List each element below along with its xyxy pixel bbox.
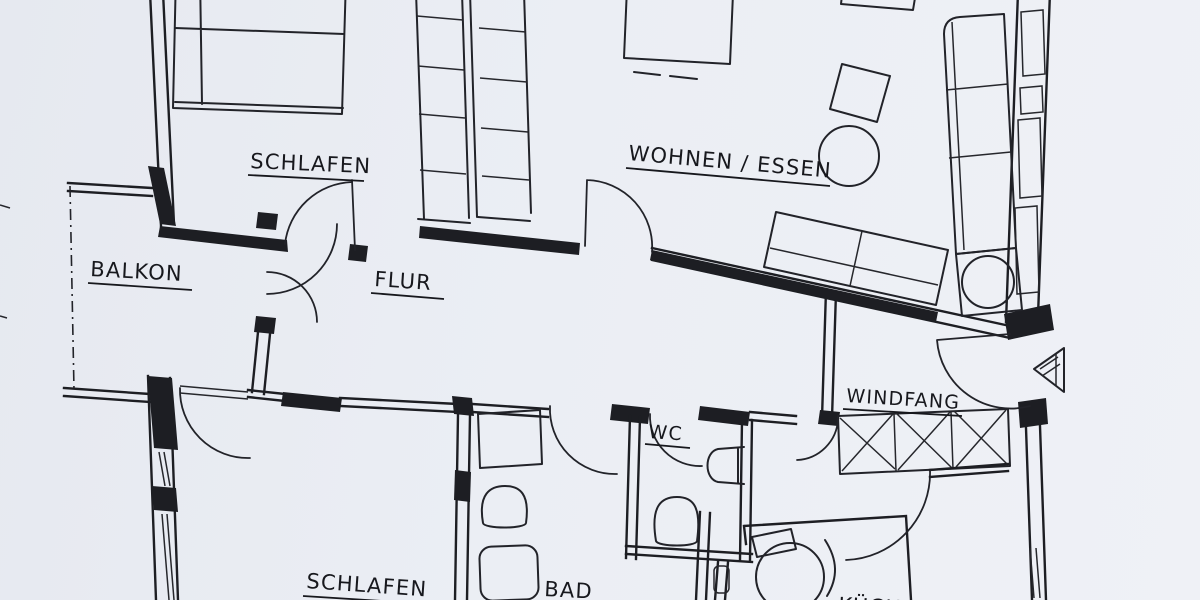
kueche-table (756, 543, 824, 600)
room-label-bad: BAD (544, 577, 594, 600)
sofa-right-cushions (946, 22, 1011, 250)
dining-table (624, 0, 734, 64)
toilet-wc (654, 497, 698, 546)
door-arc-windfang-kueche (846, 470, 930, 560)
door-arc-bad (550, 406, 617, 474)
wall-schlafen2-right (455, 414, 470, 600)
post-schlafen2-left-mid (152, 486, 178, 512)
wall-below-xbox (930, 464, 1008, 477)
wall-flur-bottom-b (340, 398, 458, 412)
bed (173, 0, 346, 114)
room-label-kueche: KÜCHE (838, 592, 918, 600)
left-edge-tick-1 (0, 205, 10, 208)
sill-schlafen2-door (180, 386, 248, 399)
wall-flur-bottom-a (248, 390, 285, 401)
balkon-open-edge (70, 186, 74, 390)
wardrobe-left-edge (416, 0, 424, 219)
window-schlafen2-glazing-1 (159, 452, 170, 486)
entrance-arrow-icon (1034, 348, 1064, 392)
window-schlafen2-glazing-2 (162, 514, 174, 600)
washbasin (708, 447, 745, 484)
wall-post-schlafen1-door (348, 244, 368, 262)
room-label-wc: WC (648, 421, 684, 445)
xbox-cross-2 (896, 412, 952, 470)
chair-diamond (830, 64, 890, 122)
sofa-right-segment (944, 14, 1016, 254)
wall-wc-left (626, 416, 640, 559)
wall-flur-bottom-fill (281, 392, 342, 412)
floor-plan-page: SCHLAFEN WOHNEN / ESSEN BALKON FLUR SCHL… (0, 0, 1200, 600)
room-label-schlafen-2: SCHLAFEN (306, 569, 428, 600)
wall-corridor-top (750, 412, 796, 424)
furniture-schlafen-1 (173, 0, 346, 114)
wall-kueche-partition (744, 516, 911, 600)
window-pane-3 (1018, 118, 1042, 198)
post-schlafen2-left-top (148, 376, 178, 450)
post-entrance-bottom (1018, 398, 1048, 428)
floor-plan-drawing: SCHLAFEN WOHNEN / ESSEN BALKON FLUR SCHL… (0, 0, 1200, 600)
sofa-corner (956, 248, 1022, 316)
entrance-arrow-outline (1034, 348, 1064, 392)
post-wc-top-right (698, 406, 750, 426)
wall-under-wardrobe (419, 226, 580, 255)
sofa-corner-cushion (962, 256, 1014, 308)
chair-dashes (634, 72, 697, 79)
door-arc-balkon-leaf1 (267, 224, 337, 294)
wall-flur-west (252, 332, 270, 394)
room-label-schlafen-1: SCHLAFEN (250, 149, 372, 178)
left-edge-tick-2 (0, 316, 7, 318)
bed-divider-lines (175, 0, 344, 108)
windfang-built-in-wardrobe (838, 409, 1010, 477)
window-pane-1 (1021, 10, 1045, 76)
wall-windfang-west (822, 290, 836, 418)
wardrobe-shelves-left (417, 16, 466, 174)
corner-right-wall (1004, 304, 1054, 340)
fixtures-bad (478, 410, 542, 600)
room-label-flur: FLUR (374, 267, 433, 295)
post-balkon-door-top (256, 212, 278, 230)
wardrobe-shelves-right (479, 28, 529, 180)
room-labels: SCHLAFEN WOHNEN / ESSEN BALKON FLUR SCHL… (88, 141, 962, 600)
wall-wc-bottom (626, 546, 752, 562)
doors (180, 180, 1030, 560)
window-pane-2 (1020, 86, 1043, 114)
underline-flur (371, 293, 444, 299)
xbox-cross-3 (954, 410, 1008, 467)
kueche-chair-arc (825, 540, 835, 596)
bathtub (479, 545, 539, 600)
wardrobe-columns (416, 0, 531, 223)
wardrobe-partition (462, 0, 477, 218)
wall-balkon-bottom (64, 388, 150, 402)
furniture-kueche (752, 529, 835, 600)
wall-windfang-right (1026, 426, 1046, 600)
wall-schlafen1-bottom (158, 226, 288, 252)
door-arc-wohnen (585, 180, 652, 252)
post-schlafen2-right-mid (454, 470, 471, 502)
top-cut-table (841, 0, 916, 10)
room-label-balkon: BALKON (90, 257, 184, 286)
shower-tray (478, 410, 542, 468)
underline-wc (645, 444, 690, 448)
wall-balkon-top (68, 183, 152, 196)
wall-wc-lower-stub (715, 562, 728, 600)
door-arc-schlafen1 (285, 180, 355, 250)
sofa-bottom-cushions (770, 231, 938, 286)
wall-wohnen-south-fill (650, 250, 938, 322)
wardrobe-bottom-caps (418, 217, 530, 223)
xbox-cross-1 (840, 414, 895, 471)
toilet-bad (482, 486, 527, 528)
